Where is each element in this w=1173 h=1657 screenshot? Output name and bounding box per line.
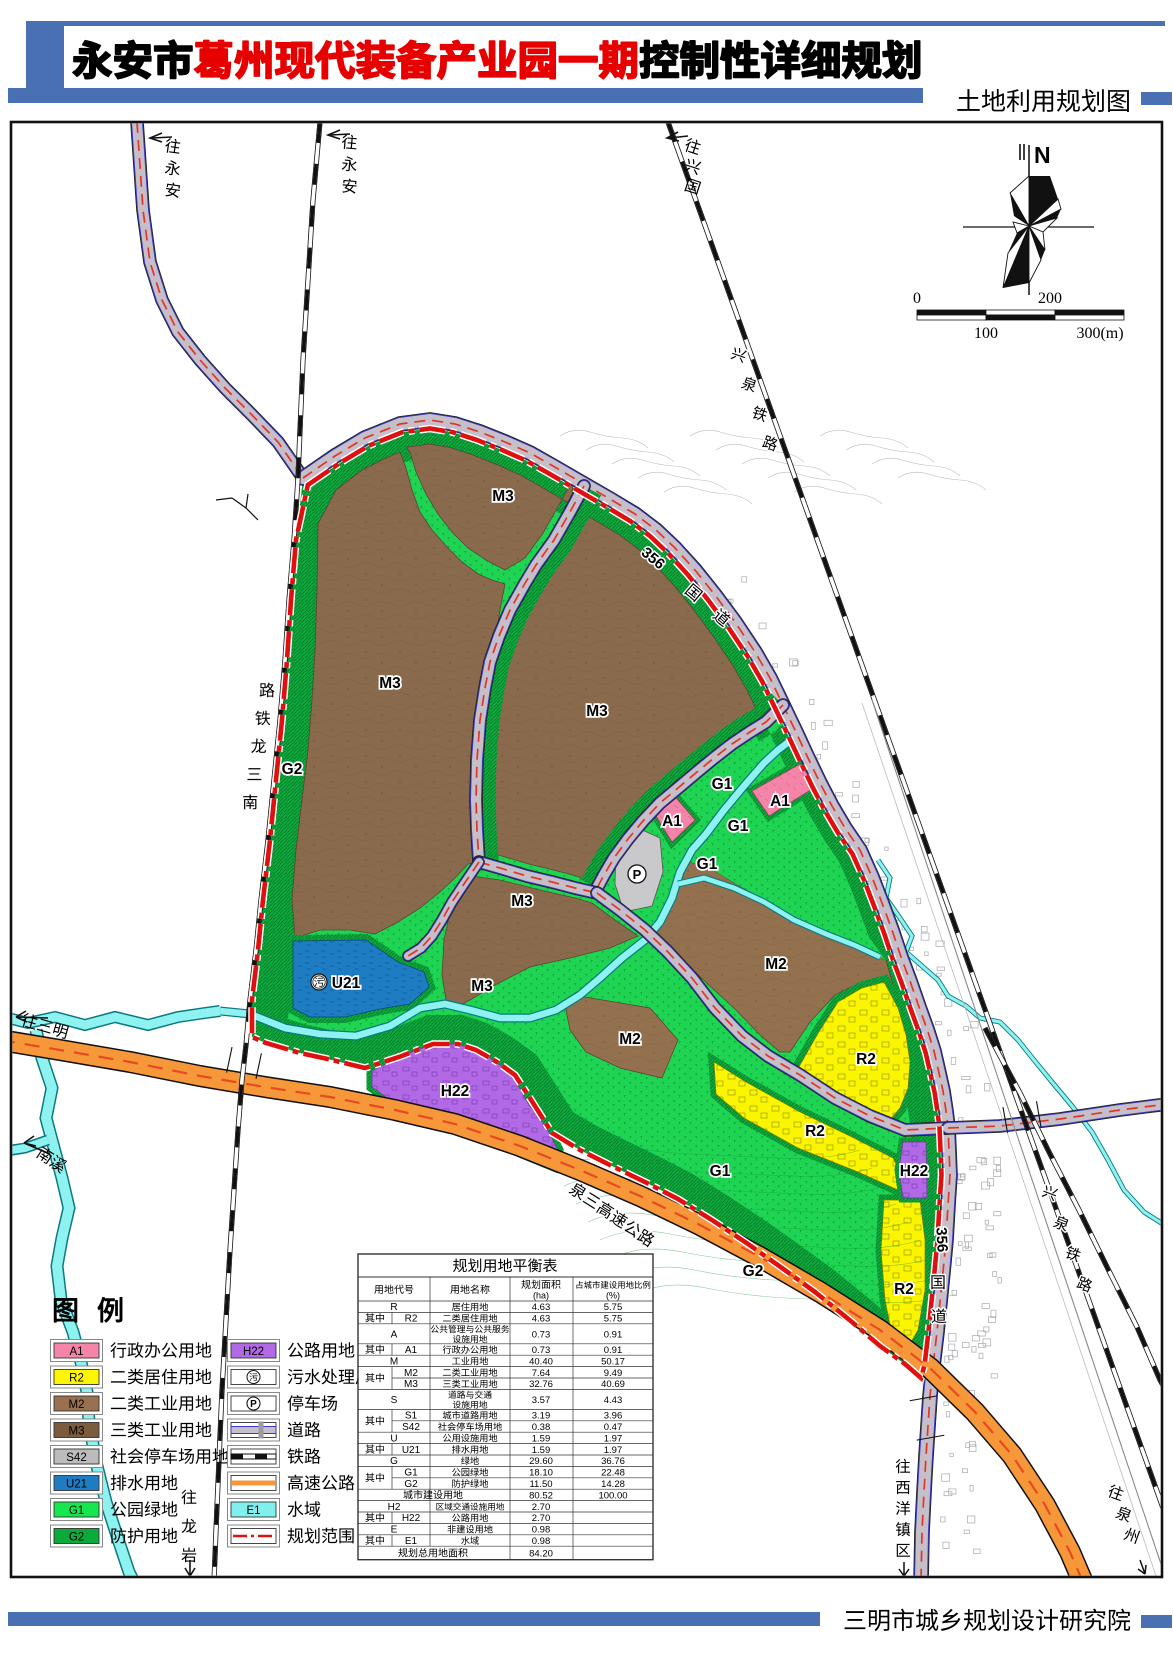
svg-text:M2: M2	[69, 1399, 85, 1411]
svg-text:(ha): (ha)	[533, 1291, 549, 1301]
svg-text:A1: A1	[69, 1346, 83, 1358]
svg-text:7.64: 7.64	[532, 1368, 551, 1379]
svg-text:1.97: 1.97	[604, 1433, 623, 1444]
svg-text:2.70: 2.70	[532, 1502, 551, 1513]
svg-text:G1: G1	[728, 818, 749, 835]
svg-text:40.69: 40.69	[601, 1379, 625, 1390]
svg-text:5.75: 5.75	[604, 1302, 623, 1313]
svg-text:80.52: 80.52	[529, 1490, 553, 1501]
svg-text:(%): (%)	[606, 1291, 620, 1301]
svg-text:S42: S42	[66, 1452, 86, 1464]
svg-text:M3: M3	[404, 1379, 418, 1390]
svg-text:G2: G2	[404, 1479, 418, 1490]
svg-text:E1: E1	[246, 1505, 260, 1517]
svg-text:R2: R2	[856, 1051, 876, 1068]
svg-text:A1: A1	[405, 1345, 418, 1356]
svg-text:R2: R2	[894, 1281, 914, 1298]
svg-text:A1: A1	[770, 793, 790, 810]
svg-text:M3: M3	[379, 675, 401, 692]
svg-text:A: A	[391, 1329, 398, 1340]
svg-text:G1: G1	[710, 1163, 731, 1180]
svg-text:0.98: 0.98	[532, 1536, 551, 1547]
svg-text:S42: S42	[402, 1422, 420, 1433]
svg-text:G1: G1	[69, 1505, 84, 1517]
svg-text:1.59: 1.59	[532, 1445, 551, 1456]
svg-text:1.59: 1.59	[532, 1433, 551, 1444]
svg-text:200: 200	[1038, 290, 1062, 307]
svg-text:G2: G2	[743, 1263, 764, 1280]
svg-text:E: E	[391, 1525, 398, 1536]
svg-text:1.97: 1.97	[604, 1445, 623, 1456]
svg-text:G2: G2	[69, 1531, 84, 1543]
svg-text:M3: M3	[586, 703, 608, 720]
svg-text:100: 100	[974, 325, 998, 342]
svg-text:R2: R2	[405, 1314, 418, 1325]
svg-text:3.57: 3.57	[532, 1395, 551, 1406]
svg-text:0.73: 0.73	[532, 1345, 551, 1356]
svg-text:R2: R2	[69, 1372, 84, 1384]
svg-text:M2: M2	[765, 956, 787, 973]
svg-text:11.50: 11.50	[529, 1479, 552, 1490]
svg-text:M3: M3	[471, 978, 493, 995]
svg-text:0: 0	[913, 290, 921, 307]
svg-text:G1: G1	[697, 856, 718, 873]
svg-text:U21: U21	[402, 1445, 421, 1456]
svg-text:5.75: 5.75	[604, 1314, 623, 1325]
svg-text:36.76: 36.76	[601, 1456, 625, 1467]
svg-text:E1: E1	[405, 1536, 418, 1547]
svg-text:H2: H2	[388, 1502, 401, 1513]
svg-text:0.73: 0.73	[532, 1329, 551, 1340]
svg-text:N: N	[1034, 142, 1051, 168]
svg-text:84.20: 84.20	[529, 1548, 553, 1559]
svg-text:H22: H22	[243, 1346, 264, 1358]
svg-text:M3: M3	[69, 1425, 85, 1437]
svg-text:4.63: 4.63	[532, 1302, 551, 1313]
svg-text:M2: M2	[404, 1368, 418, 1379]
svg-text:M3: M3	[511, 893, 533, 910]
svg-text:S: S	[391, 1395, 398, 1406]
svg-text:U21: U21	[66, 1478, 87, 1490]
svg-text:G: G	[390, 1456, 398, 1467]
svg-text:50.17: 50.17	[601, 1356, 625, 1367]
svg-text:H22: H22	[900, 1163, 928, 1180]
svg-text:4.43: 4.43	[604, 1395, 623, 1406]
svg-text:9.49: 9.49	[604, 1368, 623, 1379]
svg-text:32.76: 32.76	[529, 1379, 553, 1390]
svg-text:M: M	[390, 1356, 398, 1367]
svg-text:3.19: 3.19	[532, 1411, 551, 1422]
svg-text:H22: H22	[402, 1513, 421, 1524]
svg-text:4.63: 4.63	[532, 1314, 551, 1325]
svg-text:300(m): 300(m)	[1076, 325, 1123, 342]
svg-text:22.48: 22.48	[601, 1468, 625, 1479]
svg-text:0.91: 0.91	[604, 1345, 623, 1356]
svg-text:P: P	[633, 867, 642, 882]
svg-text:2.70: 2.70	[532, 1513, 551, 1524]
svg-text:G1: G1	[404, 1468, 418, 1479]
svg-text:0.91: 0.91	[604, 1329, 623, 1340]
svg-text:40.40: 40.40	[529, 1356, 553, 1367]
svg-text:356: 356	[932, 1227, 950, 1253]
svg-text:R2: R2	[805, 1123, 825, 1140]
svg-text:H22: H22	[441, 1083, 469, 1100]
svg-text:U21: U21	[332, 975, 361, 992]
svg-text:0.98: 0.98	[532, 1525, 551, 1536]
svg-text:U: U	[390, 1433, 397, 1444]
svg-text:M3: M3	[492, 488, 514, 505]
svg-text:100.00: 100.00	[598, 1490, 627, 1501]
svg-text:G2: G2	[282, 761, 303, 778]
svg-text:P: P	[250, 1399, 257, 1410]
svg-text:14.28: 14.28	[601, 1479, 625, 1490]
svg-text:A1: A1	[662, 813, 682, 830]
svg-text:0.47: 0.47	[604, 1422, 623, 1433]
svg-text:3.96: 3.96	[604, 1411, 623, 1422]
svg-text:29.60: 29.60	[529, 1456, 553, 1467]
svg-text:M2: M2	[619, 1031, 641, 1048]
svg-text:S1: S1	[405, 1411, 418, 1422]
svg-text:G1: G1	[712, 776, 733, 793]
svg-text:0.38: 0.38	[532, 1422, 551, 1433]
svg-text:R: R	[390, 1302, 397, 1313]
svg-text:18.10: 18.10	[529, 1468, 553, 1479]
